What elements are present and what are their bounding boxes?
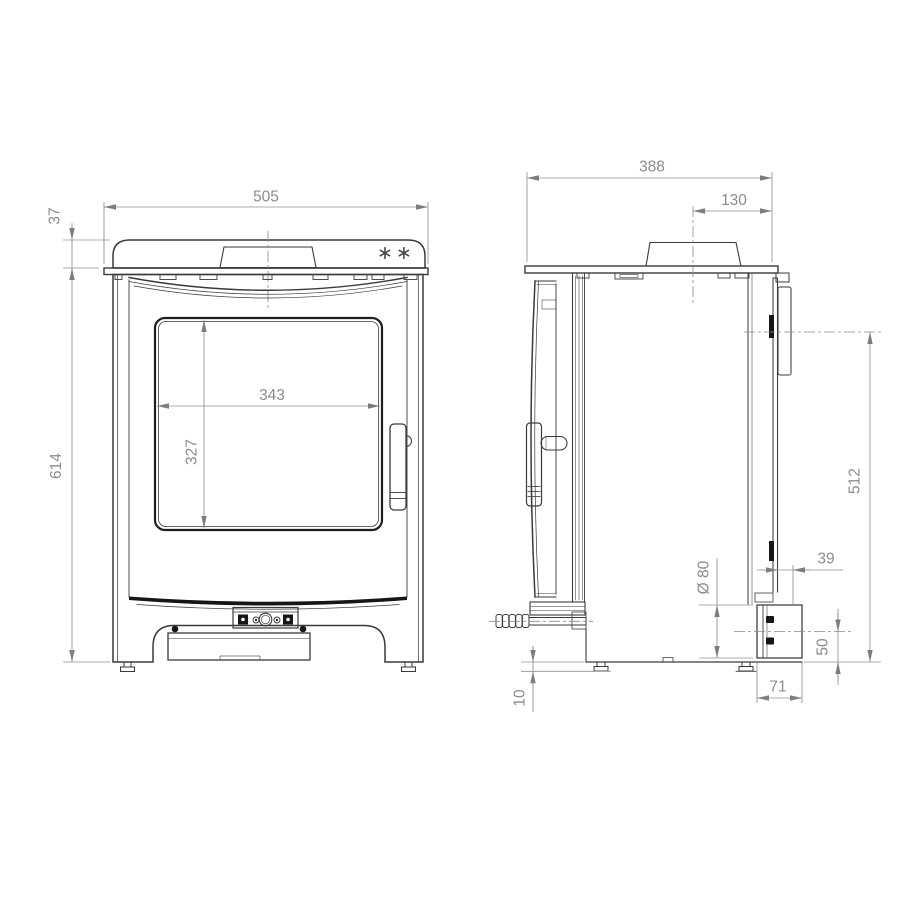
- top-plate-strip: [104, 268, 428, 275]
- feet-side: [594, 662, 756, 671]
- dim-glass-width: 343: [259, 387, 285, 404]
- ash-pan-drawer: [168, 633, 310, 660]
- door-handle-side: [527, 423, 568, 506]
- dim-top-plate-height: 37: [47, 207, 64, 224]
- rear-heat-shield: [755, 278, 791, 602]
- door-side-profile: [531, 281, 556, 597]
- technical-drawing-sheet: 505 37 614 343 327 ∗∗: [0, 0, 900, 900]
- dim-flue-centre-to-rear: 130: [721, 192, 747, 209]
- dim-floor-clearance: 10: [512, 689, 529, 707]
- flue-collar-side: [646, 243, 741, 267]
- base-and-bottom: [586, 629, 802, 662]
- side-dimensions: 388 130 512 39 Ø 80 50 71: [512, 159, 882, 713]
- dim-outlet-box-depth: 71: [769, 679, 786, 696]
- dim-air-inlet-centre-height: 50: [815, 638, 832, 656]
- plinth-band: [530, 602, 585, 615]
- door-bottom-shadow: [129, 597, 407, 606]
- dim-rear-outlet-centre-height: 512: [847, 468, 864, 494]
- left-foot: [121, 662, 135, 672]
- front-dimensions: 505 37 614 343 327: [47, 189, 429, 663]
- stove-body: [113, 275, 423, 663]
- glass-window: [155, 318, 382, 530]
- base-bolt-right: [300, 626, 307, 633]
- rear-bracket: [778, 287, 791, 375]
- body-front-wall: [573, 274, 585, 602]
- stove-dimension-drawing: 505 37 614 343 327 ∗∗: [0, 0, 900, 900]
- note-asterisks: ∗∗: [377, 242, 415, 264]
- base-bolt-left: [172, 626, 179, 633]
- dim-rear-clearance: 39: [817, 551, 834, 568]
- dim-overall-depth: 388: [639, 159, 665, 176]
- door-handle: [390, 424, 412, 510]
- side-top-plate: [525, 266, 789, 282]
- rear-fixing-slot-upper: [769, 315, 774, 338]
- rear-fixing-slot-lower: [769, 541, 774, 561]
- dim-glass-height: 327: [184, 439, 201, 465]
- handle-grip: [541, 437, 567, 451]
- front-view: 505 37 614 343 327 ∗∗: [47, 189, 429, 672]
- right-foot: [402, 662, 416, 672]
- side-view: 388 130 512 39 Ø 80 50 71: [489, 159, 881, 713]
- dim-body-height: 614: [48, 453, 65, 479]
- rear-wall: [748, 274, 752, 604]
- dim-outlet-diameter: Ø 80: [696, 560, 713, 594]
- dim-overall-width: 505: [253, 189, 279, 206]
